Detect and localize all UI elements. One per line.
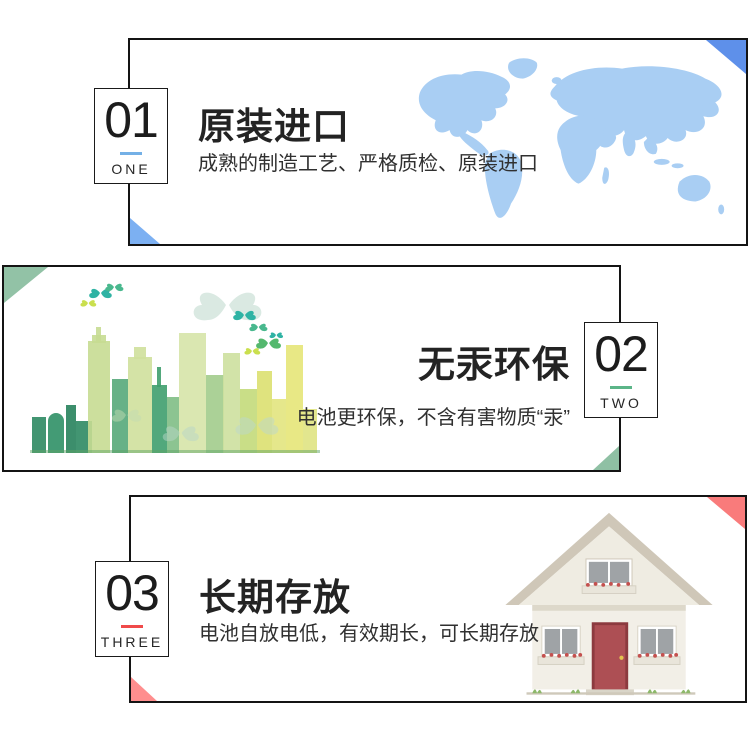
badge-03: 03 THREE (95, 561, 169, 657)
badge-number: 02 (594, 329, 648, 379)
section-subtitle: 成熟的制造工艺、严格质检、原装进口 (198, 147, 538, 176)
badge-underline (121, 625, 143, 628)
badge-01: 01 ONE (94, 88, 168, 184)
badge-word: ONE (111, 161, 150, 177)
badge-word: THREE (101, 634, 163, 650)
section-title: 长期存放 (199, 567, 351, 621)
badge-number: 03 (105, 568, 159, 618)
corner-accent-bottom-right (593, 446, 619, 470)
section-subtitle: 电池自放电低，有效期长，可长期存放 (199, 617, 539, 646)
section-subtitle: 电池更环保，不含有害物质“汞” (240, 401, 570, 430)
house-icon (502, 511, 716, 699)
promo-page: 01 ONE 原装进口 成熟的制造工艺、严格质检、原装进口 (0, 0, 750, 756)
section-title: 无汞环保 (240, 334, 570, 388)
badge-number: 01 (104, 95, 158, 145)
corner-accent-bottom-left (130, 218, 160, 244)
badge-underline (120, 152, 142, 155)
section-two-text: 无汞环保 电池更环保，不含有害物质“汞” (240, 334, 570, 430)
badge-underline (610, 386, 632, 389)
badge-02: 02 TWO (584, 322, 658, 418)
badge-word: TWO (600, 395, 642, 411)
corner-accent-bottom-left (131, 677, 157, 701)
world-map-shapes (419, 58, 724, 218)
section-title: 原装进口 (198, 96, 350, 150)
world-map-icon (406, 50, 743, 238)
